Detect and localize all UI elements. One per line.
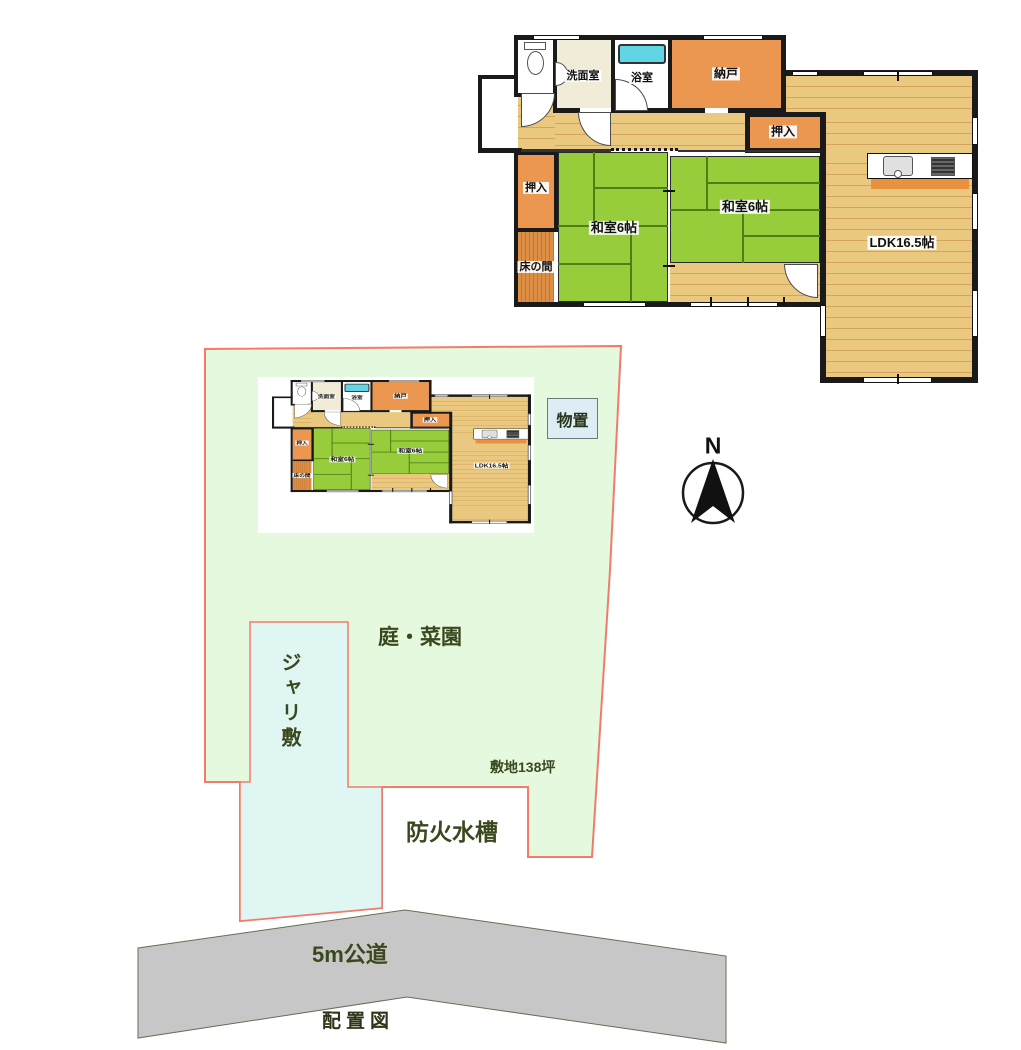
mini-floor-plan-holder: 洗面室 浴室 納戸 押入 押入 和室6帖 和室6帖 床の間 LDK16.5帖 xyxy=(272,380,532,524)
tatami-seam xyxy=(706,182,820,184)
closet-left-label: 押入 xyxy=(523,182,549,194)
storage-label: 納戸 xyxy=(712,67,740,80)
sliding-door-dotted-line xyxy=(611,148,678,151)
caption-label: 配置図 xyxy=(322,1012,394,1033)
wall xyxy=(371,410,389,412)
ldk-floor xyxy=(786,76,972,112)
wall xyxy=(554,151,558,232)
window xyxy=(533,35,580,40)
ldk-floor xyxy=(452,412,528,429)
wall xyxy=(514,35,518,97)
washroom-label: 洗面室 xyxy=(565,70,602,82)
road-label: 5m公道 xyxy=(312,943,388,967)
tatami-seam xyxy=(351,458,352,490)
tatami-seam xyxy=(409,462,449,463)
entrance-porch xyxy=(478,75,518,152)
tick-mark xyxy=(747,297,749,306)
tatami-seam xyxy=(313,474,350,475)
window xyxy=(820,305,826,337)
window xyxy=(382,490,428,492)
window xyxy=(792,71,818,76)
closet-left-label: 押入 xyxy=(295,441,308,446)
tick-mark xyxy=(897,374,899,384)
wall xyxy=(745,112,822,117)
closet-top-label: 押入 xyxy=(423,417,438,422)
wall xyxy=(555,108,580,113)
tick-mark xyxy=(489,395,490,399)
wall xyxy=(478,75,482,152)
fire-tank-label: 防火水槽 xyxy=(406,820,498,845)
site-plan-canvas: N 物置 庭・菜園 ジャリ敷 敷地138坪 防火水槽 5m公道 配置図 xyxy=(0,0,1021,1050)
road-polygon xyxy=(138,910,726,1043)
storage-label: 納戸 xyxy=(393,393,408,398)
tick-mark xyxy=(489,520,490,524)
tatami-seam xyxy=(390,441,449,442)
toilet-tank-icon xyxy=(524,42,546,50)
wall xyxy=(745,112,750,153)
ldk-label: LDK16.5帖 xyxy=(474,463,510,469)
tick-mark xyxy=(411,488,412,492)
tatami-seam xyxy=(593,187,668,189)
sliding-door-dotted-line xyxy=(341,427,376,428)
tick-mark xyxy=(368,444,374,445)
bathtub-icon xyxy=(345,384,370,392)
bath-label: 浴室 xyxy=(629,72,655,84)
tick-mark xyxy=(663,190,675,192)
wall xyxy=(478,75,518,79)
wall xyxy=(376,427,450,428)
window xyxy=(972,193,978,230)
window xyxy=(972,290,978,337)
tatami-seam xyxy=(630,225,632,302)
tick-mark xyxy=(783,297,785,306)
entrance-porch xyxy=(272,396,293,428)
ldk-floor xyxy=(432,397,528,412)
wall xyxy=(370,380,372,412)
tick-mark xyxy=(430,488,431,492)
site-area-label: 敷地138坪 xyxy=(490,760,555,775)
wall xyxy=(518,228,558,232)
wall xyxy=(521,149,611,152)
wall xyxy=(291,380,293,406)
wall xyxy=(311,428,313,461)
tick-mark xyxy=(897,71,899,81)
bathtub-icon xyxy=(618,44,666,64)
tatami-left-label: 和室6帖 xyxy=(589,221,639,235)
faucet-icon xyxy=(894,170,902,178)
tick-mark xyxy=(710,297,712,306)
toilet-bowl-icon xyxy=(527,51,544,75)
window xyxy=(528,414,531,426)
bath-label: 浴室 xyxy=(350,395,363,400)
window xyxy=(389,380,420,382)
wall xyxy=(781,35,786,117)
floor-plan: 洗面室 浴室 納戸 押入 押入 和室6帖 和室6帖 床の間 LDK16.5帖 xyxy=(272,380,531,523)
window xyxy=(300,380,324,382)
window xyxy=(435,395,448,397)
tokonoma-label: 床の間 xyxy=(292,473,311,478)
tatami-right-label: 和室6帖 xyxy=(397,448,423,454)
tatami-left-label: 和室6帖 xyxy=(329,457,355,463)
wall xyxy=(272,396,274,428)
shed-label: 物置 xyxy=(556,407,588,431)
counter-edge xyxy=(476,439,527,443)
washroom-label: 洗面室 xyxy=(317,394,336,399)
stove-icon xyxy=(931,157,955,176)
wall xyxy=(294,427,341,428)
window xyxy=(690,302,778,307)
wall xyxy=(410,412,450,414)
tokonoma-label: 床の間 xyxy=(518,261,555,273)
compass-n-label: N xyxy=(705,433,722,460)
tick-mark xyxy=(663,265,675,267)
tatami-seam xyxy=(332,443,371,444)
ldk-floor xyxy=(826,112,972,153)
stove-icon xyxy=(507,430,519,438)
window xyxy=(326,490,359,492)
wall xyxy=(670,108,705,113)
wall xyxy=(668,35,672,113)
tatami-seam xyxy=(742,235,820,237)
counter-edge xyxy=(871,179,969,189)
garden-label: 庭・菜園 xyxy=(378,626,462,649)
gravel-label: ジャリ敷 xyxy=(278,652,300,752)
tick-mark xyxy=(368,475,374,476)
wall xyxy=(293,460,314,462)
tatami-right-label: 和室6帖 xyxy=(720,200,770,214)
shed-box: 物置 xyxy=(547,398,598,439)
closet-top-label: 押入 xyxy=(769,125,797,138)
north-arrow-icon xyxy=(683,459,743,523)
window xyxy=(703,35,763,40)
window xyxy=(583,302,646,307)
window xyxy=(972,117,978,145)
window xyxy=(528,485,531,504)
tatami-seam xyxy=(558,263,630,265)
wall xyxy=(272,396,293,398)
wall xyxy=(678,150,820,152)
window xyxy=(528,445,531,460)
ldk-label: LDK16.5帖 xyxy=(867,236,936,250)
toilet-bowl-icon xyxy=(297,387,306,397)
tick-mark xyxy=(392,488,393,492)
floor-plan: 洗面室 浴室 納戸 押入 押入 和室6帖 和室6帖 床の間 LDK16.5帖 xyxy=(478,35,978,383)
window xyxy=(449,491,452,504)
